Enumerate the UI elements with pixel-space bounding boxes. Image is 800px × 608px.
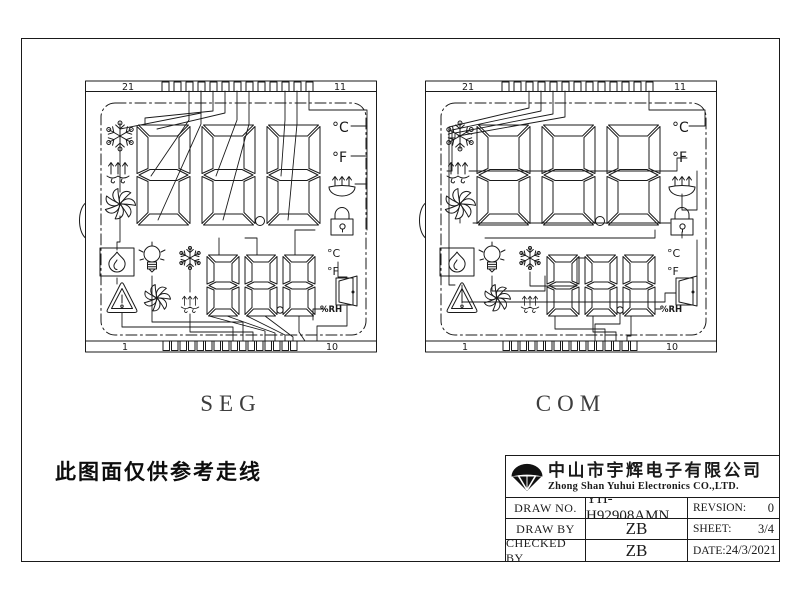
pin-tab — [514, 82, 521, 92]
checked-by-value: ZB — [586, 540, 688, 561]
pin-number-bottom-left: 1 — [462, 342, 468, 353]
pin-tab — [306, 82, 313, 92]
pin-tab — [550, 82, 557, 92]
pin-tab — [580, 341, 587, 351]
pin-tab — [246, 82, 253, 92]
company-row: 中山市宇辉电子有限公司 Zhong Shan Yuhui Electronics… — [506, 456, 779, 498]
small-fan-icon — [484, 284, 512, 312]
pin-number-top-left: 21 — [122, 82, 134, 93]
date-value: 24/3/2021 — [726, 543, 777, 558]
pin-tab — [622, 341, 629, 351]
steam-dish-icon — [669, 177, 695, 197]
routing-trace — [227, 316, 275, 341]
draw-no-value: YH-H92908AMN — [586, 498, 688, 519]
pin-tab — [586, 82, 593, 92]
pin-tab — [634, 82, 641, 92]
com-panel-drawing: 2111110°C°F°C°F%RH — [425, 80, 720, 356]
fahrenheit-top-label: °F — [332, 150, 347, 166]
routing-trace — [449, 91, 529, 285]
draw-by-label: DRAW BY — [506, 519, 586, 540]
pin-tab — [206, 341, 213, 351]
pin-tab — [614, 341, 621, 351]
pin-tabs-bottom — [163, 341, 297, 351]
pin-number-bottom-left: 1 — [122, 342, 128, 353]
pin-tab — [186, 82, 193, 92]
warning-triangle-icon — [107, 283, 137, 313]
pin-tab — [526, 82, 533, 92]
large-digit — [477, 125, 530, 225]
pin-tab — [503, 341, 510, 351]
large-digit — [202, 125, 255, 225]
pin-tab — [622, 82, 629, 92]
pin-tab — [248, 341, 255, 351]
bulb-icon — [479, 242, 505, 272]
pin-tab — [265, 341, 272, 351]
pin-tab — [189, 341, 196, 351]
pin-tab — [240, 341, 247, 351]
celsius-bottom-label: °C — [667, 247, 681, 260]
pin-tab — [537, 341, 544, 351]
pin-tab — [538, 82, 545, 92]
pin-tab — [554, 341, 561, 351]
pin-tab — [598, 82, 605, 92]
routing-traces — [447, 91, 705, 341]
pin-tab — [529, 341, 536, 351]
small-digits — [547, 255, 655, 316]
draw-by-value: ZB — [586, 519, 688, 540]
routing-trace — [122, 313, 233, 341]
pin-tab — [562, 82, 569, 92]
small-digit — [207, 255, 239, 316]
lock-icon — [671, 208, 693, 236]
sheet-value: 3/4 — [758, 522, 774, 537]
small-defrost-icon — [521, 296, 539, 312]
pin-tab — [512, 341, 519, 351]
defrost-icon — [447, 163, 469, 183]
viewing-area-border — [441, 103, 706, 335]
routing-trace — [485, 230, 655, 238]
lock-icon — [331, 208, 353, 236]
sheet-cell: SHEET: 3/4 — [688, 519, 779, 540]
pin-tab — [234, 82, 241, 92]
routing-trace — [245, 238, 257, 255]
large-digits — [477, 125, 660, 225]
pin-tab — [210, 82, 217, 92]
pin-tab — [214, 341, 221, 351]
celsius-bottom-label: °C — [327, 247, 341, 260]
routing-trace — [295, 230, 315, 255]
routing-trace — [216, 91, 237, 176]
pin-tab — [574, 82, 581, 92]
small-digit — [547, 255, 579, 316]
pin-number-top-right: 11 — [674, 82, 686, 93]
routing-trace — [299, 316, 305, 341]
pin-tab — [163, 341, 170, 351]
pin-tab — [258, 82, 265, 92]
flame-icon — [440, 248, 474, 276]
pin-number-bottom-right: 10 — [666, 342, 678, 353]
celsius-top-label: °C — [332, 120, 349, 136]
viewing-area-border — [101, 103, 366, 335]
door-icon — [336, 276, 357, 306]
pin-tab — [610, 82, 617, 92]
pin-tab — [646, 82, 653, 92]
fahrenheit-bottom-label: °F — [667, 265, 679, 278]
pin-number-top-left: 21 — [462, 82, 474, 93]
celsius-top-label: °C — [672, 120, 689, 136]
pin-tab — [291, 341, 298, 351]
pin-tab — [597, 341, 604, 351]
large-digit — [542, 125, 595, 225]
large-digit — [607, 125, 660, 225]
large-digit — [267, 125, 320, 225]
revision-label: REVSION: — [693, 502, 746, 514]
routing-trace — [265, 316, 293, 341]
routing-trace — [157, 91, 225, 129]
routing-trace — [145, 91, 213, 125]
pin-tab — [162, 82, 169, 92]
pin-tab — [180, 341, 187, 351]
flame-icon — [100, 248, 134, 276]
pin-tab — [223, 341, 230, 351]
small-digit — [623, 255, 655, 316]
pin-tab — [605, 341, 612, 351]
pin-tabs-top — [162, 82, 313, 92]
pin-tab — [198, 82, 205, 92]
routing-trace — [117, 216, 120, 250]
company-logo-icon — [509, 461, 545, 493]
fan-icon — [445, 188, 477, 220]
pin-tab — [563, 341, 570, 351]
pin-tab — [257, 341, 264, 351]
pin-number-top-right: 11 — [334, 82, 346, 93]
small-decimal-point — [277, 307, 283, 313]
small-decimal-point — [617, 307, 623, 313]
pin-tab — [231, 341, 238, 351]
door-icon — [676, 276, 697, 306]
checked-by-label: CHECKED BY — [506, 540, 586, 561]
defrost-icon — [107, 163, 129, 183]
small-digit — [283, 255, 315, 316]
revision-cell: REVSION: 0 — [688, 498, 779, 519]
routing-trace — [190, 314, 253, 341]
small-fan-icon — [144, 284, 172, 312]
pin-tab — [502, 82, 509, 92]
draw-no-label: DRAW NO. — [506, 498, 586, 519]
large-digit — [137, 125, 190, 225]
routing-trace — [627, 316, 631, 341]
pin-tab — [631, 341, 638, 351]
reference-note: 此图面仅供参考走线 — [55, 456, 262, 486]
small-snowflake-icon — [518, 247, 541, 270]
pin-tab — [282, 82, 289, 92]
title-block: 中山市宇辉电子有限公司 Zhong Shan Yuhui Electronics… — [505, 455, 780, 562]
date-label: DATE: — [693, 545, 726, 557]
pin-tab — [274, 341, 281, 351]
small-digits — [207, 255, 315, 316]
revision-value: 0 — [768, 501, 774, 516]
drawing-sheet: 2111110°C°F°C°F%RH 2111110°C°F°C°F%RH SE… — [0, 0, 800, 608]
routing-trace — [593, 316, 616, 341]
routing-trace — [281, 91, 285, 176]
humidity-label: %RH — [660, 305, 682, 315]
fahrenheit-bottom-label: °F — [327, 265, 339, 278]
company-name-cn: 中山市宇辉电子有限公司 — [548, 461, 776, 481]
com-label: COM — [491, 391, 651, 417]
seg-panel-drawing: 2111110°C°F°C°F%RH — [85, 80, 380, 356]
pin-tab — [174, 82, 181, 92]
date-cell: DATE: 24/3/2021 — [688, 540, 779, 561]
pin-tab — [270, 82, 277, 92]
bulb-icon — [139, 242, 165, 272]
pin-tab — [282, 341, 289, 351]
pin-tab — [571, 341, 578, 351]
routing-trace — [555, 316, 605, 341]
pin-tab — [546, 341, 553, 351]
pin-tab — [172, 341, 179, 351]
sheet-label: SHEET: — [693, 523, 731, 535]
small-snowflake-icon — [178, 247, 201, 270]
routing-trace — [288, 91, 297, 220]
pin-tab — [197, 341, 204, 351]
pin-tabs-bottom — [503, 341, 637, 351]
pin-tab — [520, 341, 527, 351]
pin-tab — [588, 341, 595, 351]
title-block-grid: DRAW NO. YH-H92908AMN REVSION: 0 DRAW BY… — [506, 498, 779, 561]
seg-label: SEG — [151, 391, 311, 417]
small-digit — [245, 255, 277, 316]
routing-trace — [223, 91, 249, 220]
routing-trace — [492, 276, 545, 291]
humidity-label: %RH — [320, 305, 342, 315]
steam-dish-icon — [329, 177, 355, 197]
pin-number-bottom-right: 10 — [326, 342, 338, 353]
company-name-en: Zhong Shan Yuhui Electronics CO.,LTD. — [548, 481, 776, 492]
pin-tabs-top — [502, 82, 653, 92]
large-decimal-point — [596, 217, 605, 226]
large-decimal-point — [256, 217, 265, 226]
small-defrost-icon — [181, 296, 199, 312]
pin-tab — [222, 82, 229, 92]
fan-icon — [105, 188, 137, 220]
pin-tab — [294, 82, 301, 92]
routing-trace — [338, 262, 347, 277]
small-digit — [585, 255, 617, 316]
